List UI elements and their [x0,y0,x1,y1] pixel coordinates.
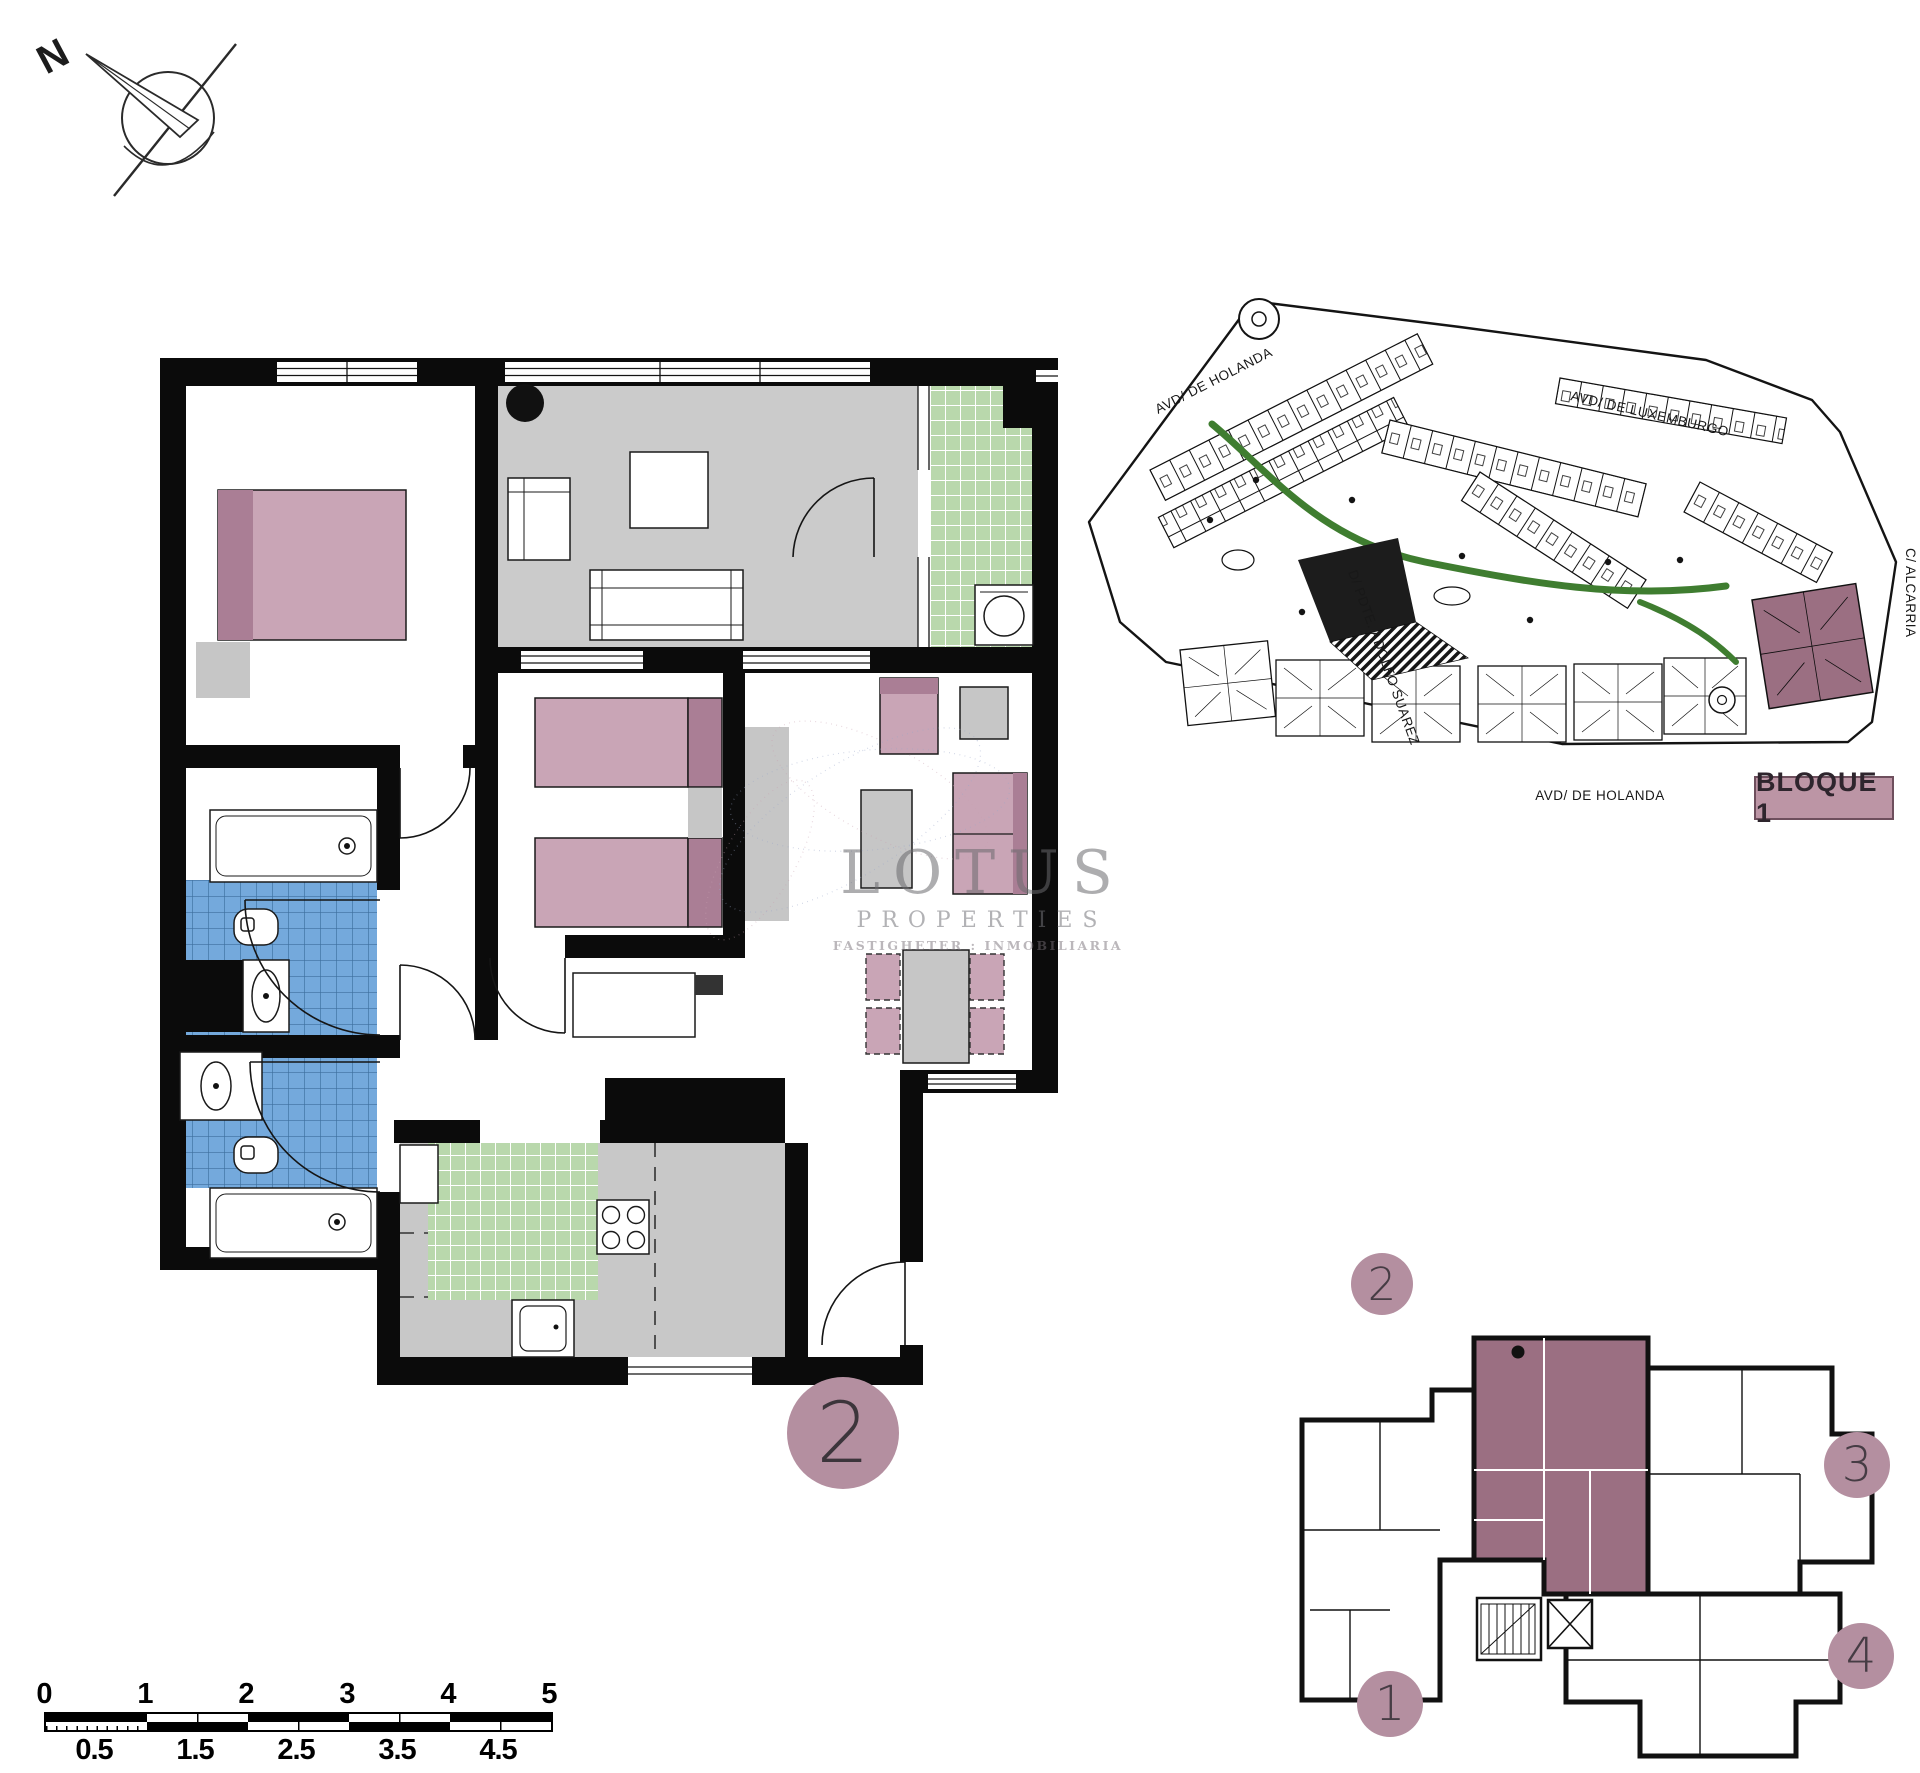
scale-major-tick: 4 [440,1678,455,1711]
walls-part [377,1035,400,1058]
plan-drawing: N [0,0,1920,1773]
park-features-part [1434,587,1470,605]
north-compass-icon-part [86,54,190,129]
scale-minor-tick: 3.5 [378,1734,415,1767]
bathtub [210,1188,377,1258]
scale-bar-rule-part [46,1714,551,1722]
entry-door [822,1262,905,1345]
scale-bar-rule-part-part [248,1714,349,1722]
walls-part [160,358,186,1270]
desk [573,973,695,1037]
highlighted-block [1752,584,1873,709]
bed-twin-1 [535,698,688,787]
key-unit-2-highlighted [1474,1338,1648,1594]
walls-part [377,1192,400,1385]
walls-part [463,745,475,768]
windows-part [928,1074,1016,1089]
scale-bar-rule-part-part [450,1714,551,1722]
scale-bar-rule-part-part [147,1722,248,1730]
street-label: C/ ALCARRIA [1903,548,1918,638]
bed-headboard [218,490,253,640]
tv-unit [745,727,789,921]
hall-door [400,965,475,1040]
key-unit-number: 3 [1842,1437,1873,1493]
dining-chairs-part [866,1008,900,1054]
bedroom1-door [400,768,470,838]
scale-bar-rule-part-part [248,1722,349,1730]
scale-minor-tick: 2.5 [277,1734,314,1767]
site-plan: AVD/ DE HOLANDA AVD/ DE LUXEMBURGO C/ AL… [1089,299,1918,803]
windows-part [743,651,870,669]
scale-major-tick: 1 [137,1678,152,1711]
park-features-part [1222,550,1254,570]
walls-part [160,745,400,768]
scale-bar-rule-part-part [46,1722,147,1730]
unit-number: 2 [816,1384,869,1482]
column-dot [506,384,544,422]
bed-twin-2-pillow [688,838,722,927]
bathtub [210,810,377,882]
kitchen-sink [512,1300,574,1357]
scale-minor-tick: 0.5 [75,1734,112,1767]
scale-bar-rule-part-part [349,1714,450,1722]
kitchen-green-floor [428,1143,598,1300]
scale-major-tick: 0 [36,1678,51,1711]
trees-part [1349,497,1355,503]
scale-bar-rule-part [46,1722,551,1730]
bedroom2-door [490,958,565,1033]
windows-part [505,362,870,382]
scale-minor-tick: 4.5 [479,1734,516,1767]
fridge [400,1145,438,1203]
walls-part [565,935,745,958]
trees-part [1299,609,1305,615]
key-unit-number: 2 [1368,1258,1397,1311]
scale-bar-rule-part-part [349,1722,450,1730]
walls-part [605,1078,785,1120]
walls-part [900,1345,923,1357]
furniture-part [241,1146,254,1159]
furniture-part [263,993,269,999]
dining-chairs-part [970,1008,1004,1054]
walls-part [377,768,400,890]
armchair-back [880,678,938,694]
duplex-clusters-part [1478,666,1566,742]
desk-chair [695,975,723,995]
north-compass-icon: N [30,30,236,196]
key-unit-badge-3: 3 [1824,1432,1890,1498]
sofa-lounge [590,570,743,640]
furniture-part [554,1325,559,1330]
walls-part [900,1093,923,1262]
trees-part [1253,477,1259,483]
street-label: AVD/ DE HOLANDA [1535,788,1665,803]
walls-part [394,1357,628,1385]
north-compass-icon-part [124,132,214,165]
walls-part [186,960,243,1032]
bloque-label: BLOQUE 1 [1754,776,1894,820]
walls-part [1032,358,1058,1093]
duplex-clusters-part [1276,660,1364,736]
sofa-back [1013,773,1027,894]
key-unit-number: 4 [1846,1628,1877,1684]
scale-bar-rule-part-part [450,1722,551,1730]
dining-table [903,950,969,1063]
scale-bar-rule [44,1712,553,1732]
walls-part [475,935,490,958]
scale-bar-rule-part-part [147,1714,248,1722]
trees-part [1207,517,1213,523]
key-unit-2-dot [1512,1346,1525,1359]
furniture-part [213,1083,219,1089]
furniture-part [344,843,350,849]
nightstand [688,788,722,838]
nightstand [196,642,250,698]
side-table [960,687,1008,739]
dining-chairs-part [866,954,900,1000]
north-label: N [30,30,76,82]
floorplan-page: N [0,0,1920,1773]
roundabouts-part [1252,312,1266,326]
duplex-clusters-part [1574,664,1662,740]
trees-part [1527,617,1533,623]
scale-major-tick: 5 [541,1678,556,1711]
terrace-glass-wall [918,386,929,647]
key-unit-badge-4: 4 [1828,1623,1894,1689]
windows-part [628,1361,752,1381]
furniture-part [334,1219,340,1225]
main-floor-plan [160,358,1058,1385]
trees-part [1677,557,1683,563]
key-unit-badge-1: 1 [1357,1671,1423,1737]
dining-chairs-part [970,954,1004,1000]
scale-bar-rule-part-part [46,1714,147,1722]
walls-part [1003,358,1058,428]
scale-major-tick: 3 [339,1678,354,1711]
duplex-clusters-part [1180,641,1275,726]
key-unit-4 [1566,1594,1840,1756]
scale-major-tick: 2 [238,1678,253,1711]
bloque-label-text: BLOQUE 1 [1756,767,1892,829]
key-unit-number: 1 [1375,1676,1406,1732]
walls-part [785,1143,808,1357]
walls-part [723,673,745,935]
wardrobe [508,478,570,560]
square-table [630,452,708,528]
key-unit-badge-2: 2 [1351,1253,1413,1315]
walls-part [600,1120,785,1143]
walls-part [394,1120,480,1143]
bed-twin-1-pillow [688,698,722,787]
trees-part [1459,553,1465,559]
key-unit-1 [1302,1390,1474,1700]
windows-part [521,651,643,669]
trees-part [1605,559,1611,565]
scale-minor-tick: 1.5 [176,1734,213,1767]
roundabouts-part [1718,696,1727,705]
coffee-table [861,790,912,888]
unit-number-badge: 2 [787,1377,899,1489]
bed-twin-2 [535,838,688,927]
